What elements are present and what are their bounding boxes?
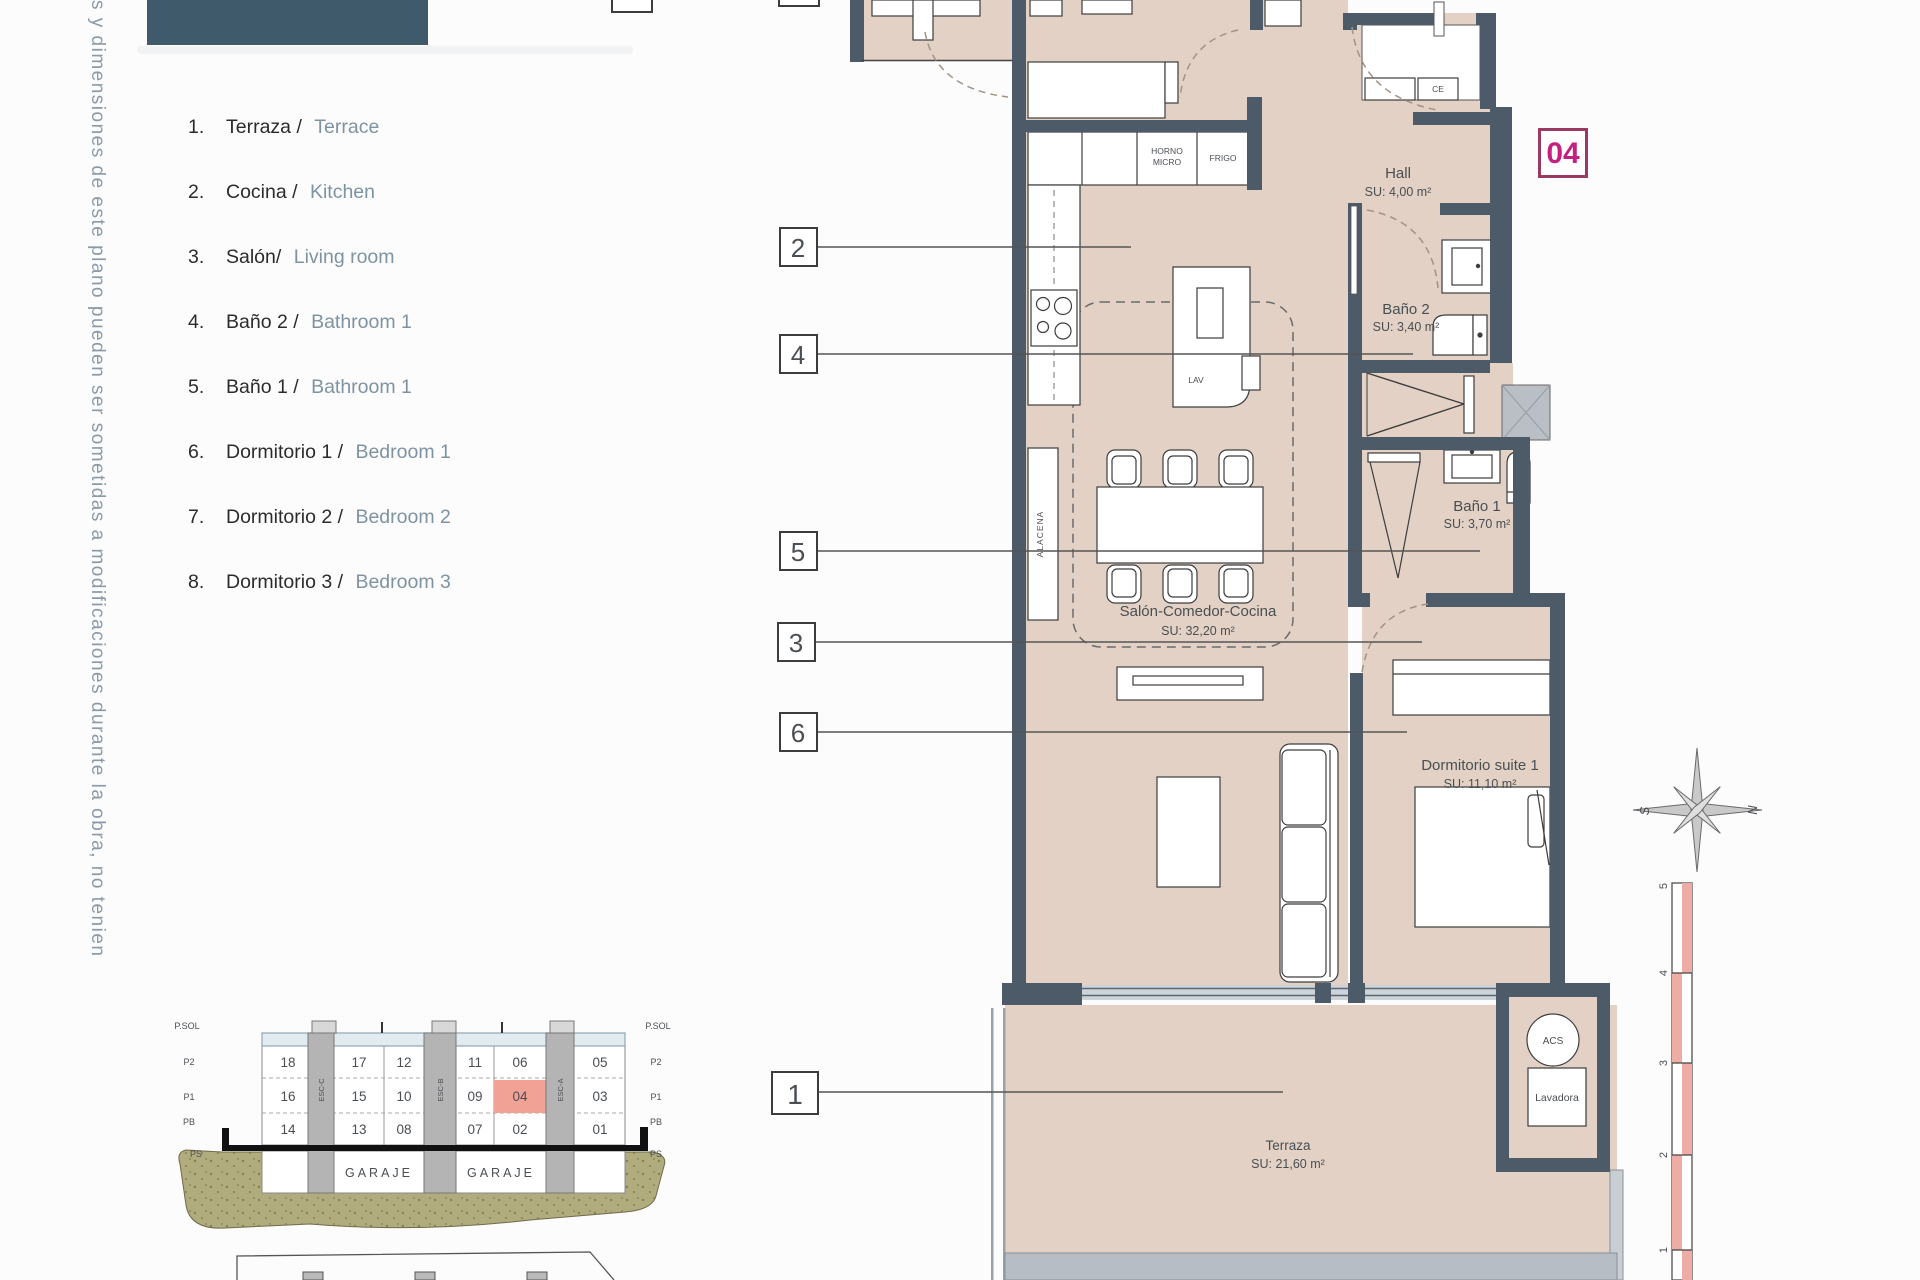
legend-es: Dormitorio 1 / [226, 441, 348, 464]
level-p1-left: P1 [183, 1092, 194, 1102]
legend-es: Baño 1 / [226, 376, 304, 399]
legend-num: 6. [188, 441, 226, 464]
entrance-door-leaf [1434, 2, 1444, 36]
legend-item-dorm3: 8.Dormitorio 3 / Bedroom 3 [188, 571, 451, 636]
ce-label: CE [1432, 84, 1444, 94]
scale-tick-4: 4 [1658, 970, 1670, 976]
legend-en: Bedroom 2 [355, 506, 450, 529]
legend-num: 1. [188, 116, 226, 139]
level-ps-left: PS [190, 1149, 202, 1159]
svg-text:3: 3 [789, 628, 803, 658]
suite-furniture [1393, 660, 1550, 927]
callout-6: 6 [780, 713, 817, 751]
entry-closet [1362, 25, 1480, 100]
legend-en: Terrace [314, 116, 379, 139]
hall-area: SU: 4,00 m² [1365, 185, 1432, 199]
legend-item-bano2: 4.Baño 2 / Bathroom 1 [188, 311, 451, 376]
legend-num: 8. [188, 571, 226, 594]
unit-cell: 02 [512, 1122, 527, 1137]
suite-area: SU: 11,10 m² [1444, 777, 1517, 791]
legend-en: Bedroom 1 [355, 441, 450, 464]
suite-label: Dormitorio suite 1 [1421, 757, 1539, 774]
unit-cell: 09 [467, 1089, 482, 1104]
closet-rod [1368, 453, 1420, 462]
utility-closet [1527, 1014, 1586, 1126]
bano1-area: SU: 3,70 m² [1444, 517, 1511, 531]
burner [1055, 323, 1071, 339]
level-p2-left: P2 [183, 1057, 194, 1067]
legend-en: Bathroom 1 [311, 311, 412, 334]
garaje-label: GARAJE [345, 1166, 413, 1180]
level-psol-right: P.SOL [645, 1021, 670, 1031]
esc-c-label: ESC-C [317, 1078, 326, 1102]
legend-es: Terraza / [226, 116, 307, 139]
dining-set [1097, 450, 1263, 603]
kitchen-counter [1028, 62, 1165, 118]
svg-text:2: 2 [791, 233, 805, 263]
unit-cell: 08 [396, 1122, 411, 1137]
lavadora-label: Lavadora [1535, 1092, 1579, 1104]
unit-cell: 07 [467, 1122, 482, 1137]
compass-north-label: N [1745, 805, 1760, 815]
unit-cell-highlighted: 04 [512, 1089, 528, 1104]
burner [1038, 322, 1049, 333]
scale-tick-5: 5 [1658, 883, 1670, 889]
legend-item-dorm1: 6.Dormitorio 1 / Bedroom 1 [188, 441, 451, 506]
bano2-area: SU: 3,40 m² [1373, 320, 1440, 334]
legend: 1.Terraza / Terrace 2.Cocina / Kitchen 3… [188, 116, 451, 636]
unit-cell: 13 [351, 1122, 366, 1137]
legend-item-terraza: 1.Terraza / Terrace [188, 116, 451, 181]
callout-2: 2 [780, 228, 817, 266]
building-section: ESC-C ESC-B ESC-A 18 17 12 11 06 05 16 1… [174, 1021, 670, 1228]
level-pb-left: PB [183, 1117, 195, 1127]
legend-es: Baño 2 / [226, 311, 304, 334]
site-plan-partial [237, 1252, 614, 1280]
island-sink [1197, 288, 1223, 338]
legend-es: Cocina / [226, 181, 303, 204]
terraza-label: Terraza [1265, 1138, 1311, 1153]
esc-a-label: ESC-A [556, 1079, 565, 1102]
salon-label: Salón-Comedor-Cocina [1120, 603, 1277, 620]
legend-es: Salón/ [226, 246, 287, 269]
legend-en: Bathroom 1 [311, 376, 412, 399]
callout-7-box-partial [612, 0, 652, 12]
header-band [147, 0, 428, 45]
unit-cell: 03 [592, 1089, 607, 1104]
callout-boxes: 2 4 5 3 6 1 [612, 0, 819, 1114]
callout-4: 4 [780, 335, 817, 373]
svg-text:6: 6 [791, 718, 805, 748]
disclaimer-vertical-text: s y dimensiones de este plano pueden ser… [70, 0, 108, 1280]
sink [1452, 455, 1492, 478]
level-ps-right: PS [650, 1149, 662, 1159]
legend-item-salon: 3.Salón/ Living room [188, 246, 451, 311]
legend-item-bano1: 5.Baño 1 / Bathroom 1 [188, 376, 451, 441]
level-p2-right: P2 [650, 1057, 661, 1067]
callout-5: 5 [780, 532, 817, 570]
legend-en: Kitchen [310, 181, 375, 204]
callout-1: 1 [772, 1072, 818, 1114]
legend-num: 7. [188, 506, 226, 529]
unit-cell: 01 [592, 1122, 607, 1137]
hall-label: Hall [1385, 165, 1411, 182]
svg-text:1: 1 [787, 1079, 803, 1110]
callout-8-box-partial [779, 0, 819, 6]
legend-en: Bedroom 3 [355, 571, 450, 594]
lav-label: LAV [1188, 375, 1204, 385]
micro-label: MICRO [1153, 157, 1182, 167]
bano1-label: Baño 1 [1453, 498, 1501, 515]
garaje-label: GARAJE [467, 1166, 535, 1180]
unit-cell: 15 [351, 1089, 366, 1104]
pocket-door [1351, 206, 1357, 294]
level-psol-left: P.SOL [174, 1021, 199, 1031]
legend-num: 4. [188, 311, 226, 334]
legend-es: Dormitorio 3 / [226, 571, 348, 594]
frigo-label: FRIGO [1210, 153, 1237, 163]
burner [1055, 298, 1072, 315]
unit-cell: 18 [280, 1055, 295, 1070]
unit-cell: 06 [512, 1055, 527, 1070]
legend-num: 2. [188, 181, 226, 204]
legend-en: Living room [294, 246, 395, 269]
terraza-area: SU: 21,60 m² [1251, 1157, 1325, 1171]
horno-label: HORNO [1151, 146, 1183, 156]
compass-south-label: S [1637, 806, 1652, 815]
scale-bar: 5 4 3 2 1 [1658, 883, 1692, 1280]
unit-cell: 14 [280, 1122, 296, 1137]
acs-label: ACS [1543, 1036, 1564, 1047]
unit-cell: 16 [280, 1089, 295, 1104]
terrace-glazing [1082, 985, 1496, 1000]
tv [1133, 676, 1243, 685]
esc-b-label: ESC-B [436, 1079, 445, 1102]
cooktop [1031, 290, 1077, 346]
bano2-label: Baño 2 [1382, 301, 1430, 318]
coffee-table [1157, 777, 1220, 887]
shower-tray [1502, 385, 1550, 440]
unit-cell: 12 [396, 1055, 411, 1070]
header-shadow [137, 46, 633, 54]
unit-cell: 17 [351, 1055, 366, 1070]
burner [1037, 298, 1050, 311]
level-pb-right: PB [650, 1117, 662, 1127]
compass-icon: S N [1633, 748, 1762, 872]
unit-cell: 05 [592, 1055, 607, 1070]
floor-plan: Hall SU: 4,00 m² Baño 2 SU: 3,40 m² Baño… [612, 0, 1762, 1280]
svg-text:5: 5 [791, 537, 805, 567]
legend-num: 5. [188, 376, 226, 399]
scale-tick-1: 1 [1658, 1247, 1670, 1253]
legend-num: 3. [188, 246, 226, 269]
legend-es: Dormitorio 2 / [226, 506, 348, 529]
unit-cell: 10 [396, 1089, 411, 1104]
legend-item-cocina: 2.Cocina / Kitchen [188, 181, 451, 246]
svg-text:4: 4 [791, 340, 805, 370]
unit-cell: 11 [468, 1055, 482, 1070]
scale-tick-2: 2 [1658, 1152, 1670, 1158]
wardrobe [1393, 660, 1550, 715]
salon-area: SU: 32,20 m² [1161, 624, 1235, 638]
level-p1-right: P1 [650, 1092, 661, 1102]
legend-item-dorm2: 7.Dormitorio 2 / Bedroom 2 [188, 506, 451, 571]
scale-tick-3: 3 [1658, 1060, 1670, 1066]
unit-number-badge: 04 [1538, 128, 1588, 178]
callout-3: 3 [778, 623, 815, 661]
